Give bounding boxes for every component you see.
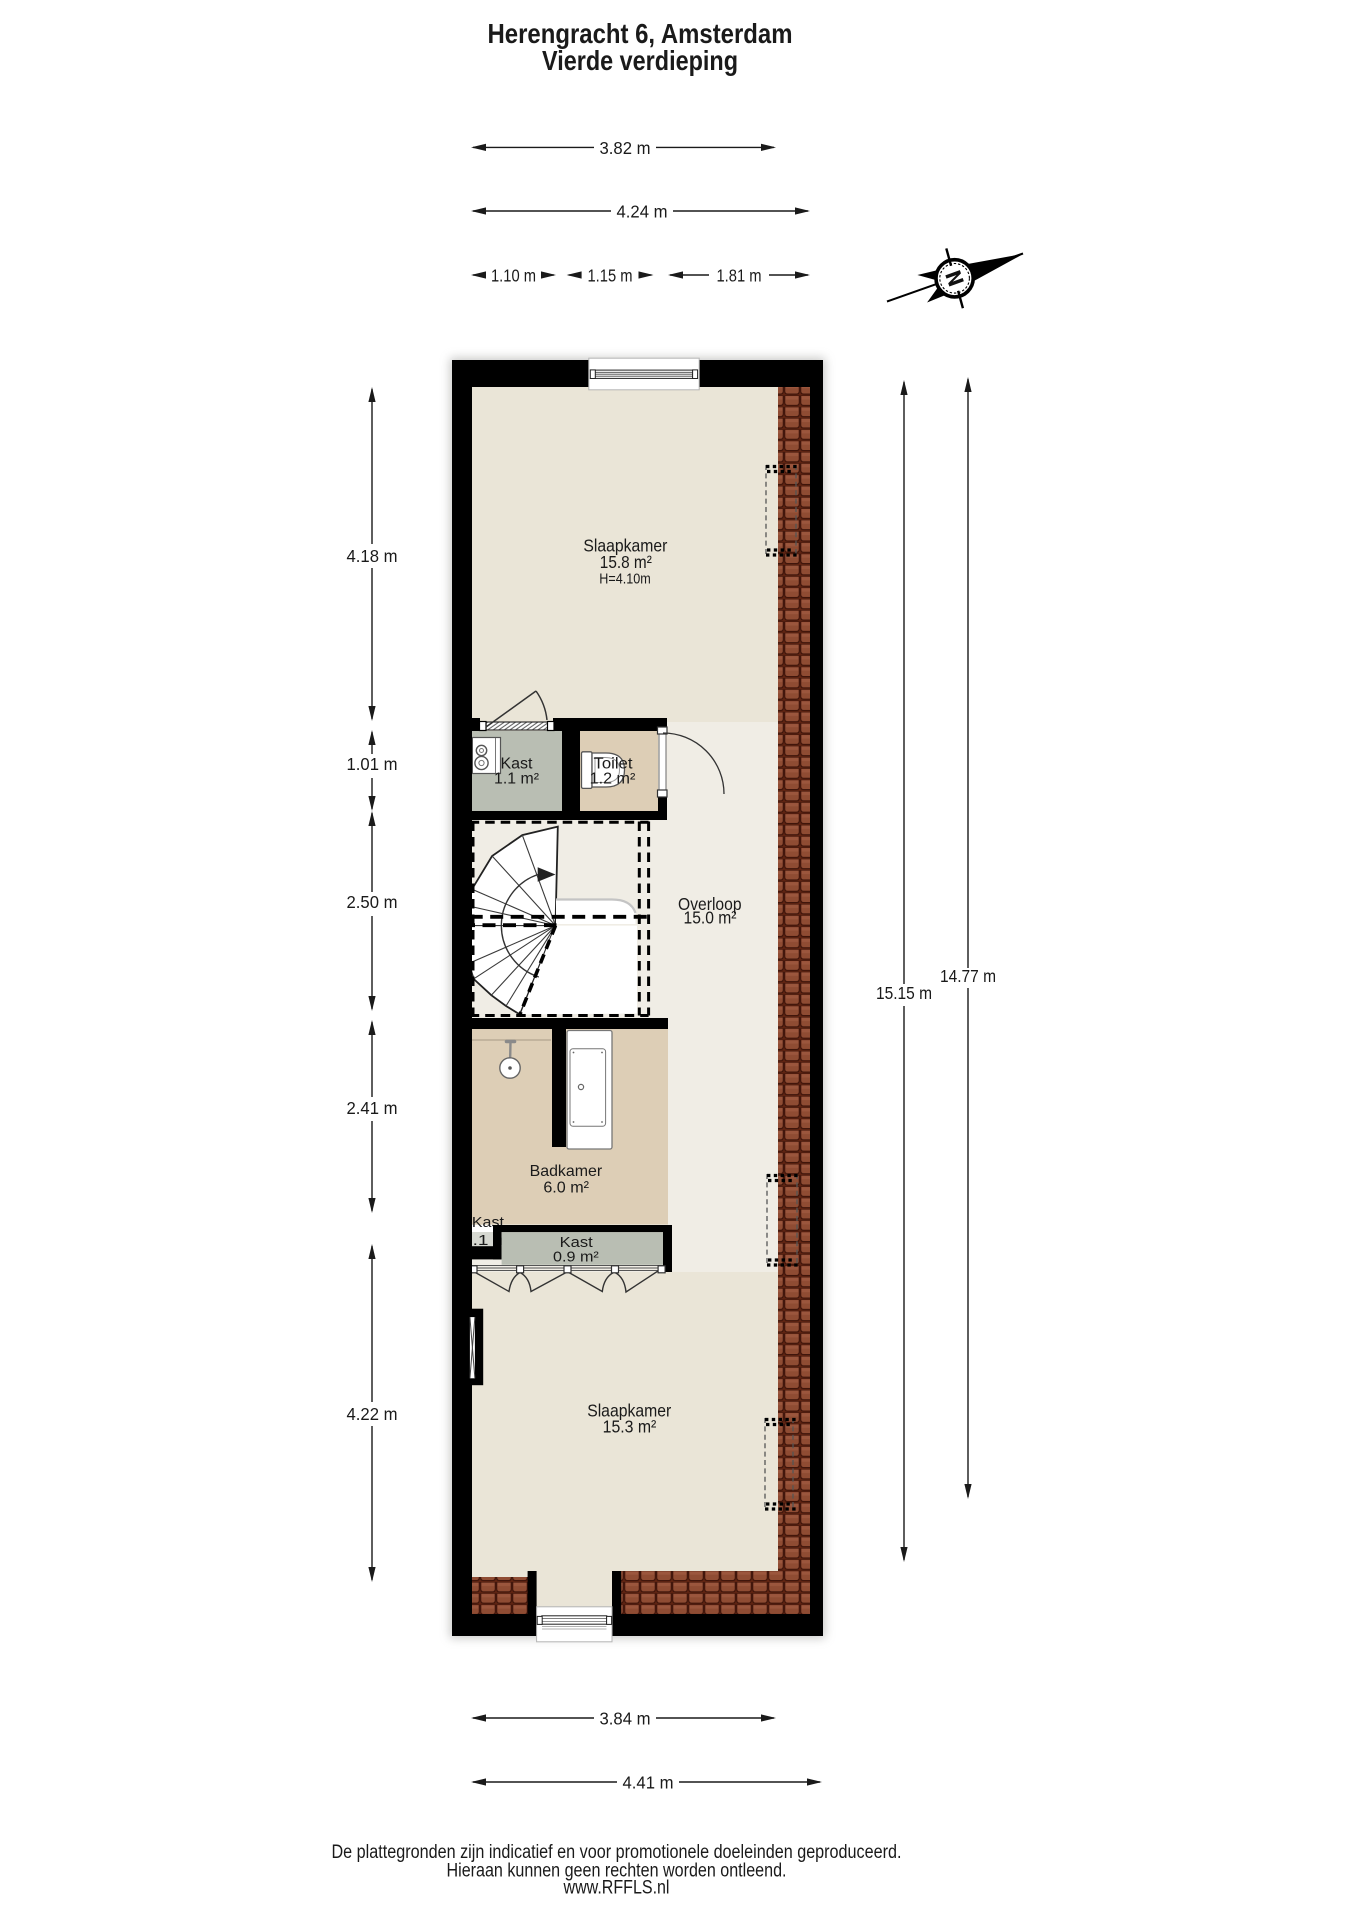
svg-text:1.15 m: 1.15 m [588, 266, 633, 286]
svg-text:4.41 m: 4.41 m [623, 1773, 674, 1793]
svg-text:2.50 m: 2.50 m [347, 892, 398, 912]
svg-text:4.24 m: 4.24 m [617, 202, 668, 222]
svg-text:15.3 m²: 15.3 m² [603, 1417, 657, 1437]
svg-text:0.9 m²: 0.9 m² [553, 1250, 599, 1266]
svg-text:Kast: Kast [560, 1235, 593, 1251]
svg-text:H=4.10m: H=4.10m [599, 572, 651, 588]
svg-text:1.01 m: 1.01 m [347, 754, 398, 774]
svg-text:4.18 m: 4.18 m [347, 546, 398, 566]
svg-text:15.15 m: 15.15 m [876, 983, 932, 1003]
svg-text:14.77 m: 14.77 m [940, 966, 996, 986]
svg-text:3.82 m: 3.82 m [600, 138, 651, 158]
svg-text:4.22 m: 4.22 m [347, 1404, 398, 1424]
svg-text:Vierde verdieping: Vierde verdieping [542, 45, 738, 76]
svg-text:Badkamer: Badkamer [530, 1163, 603, 1180]
svg-text:1.81 m: 1.81 m [717, 266, 762, 286]
svg-text:15.0 m²: 15.0 m² [684, 908, 737, 928]
svg-text:15.8 m²: 15.8 m² [600, 552, 652, 572]
svg-text:1.2 m²: 1.2 m² [590, 770, 636, 787]
svg-text:3.84 m: 3.84 m [600, 1709, 651, 1729]
svg-text:1.1 m²: 1.1 m² [494, 770, 539, 787]
svg-text:www.RFFLS.nl: www.RFFLS.nl [563, 1878, 670, 1899]
svg-text:2.41 m: 2.41 m [347, 1098, 398, 1118]
svg-text:6.0 m²: 6.0 m² [543, 1180, 589, 1197]
svg-text:1.10 m: 1.10 m [491, 266, 536, 286]
